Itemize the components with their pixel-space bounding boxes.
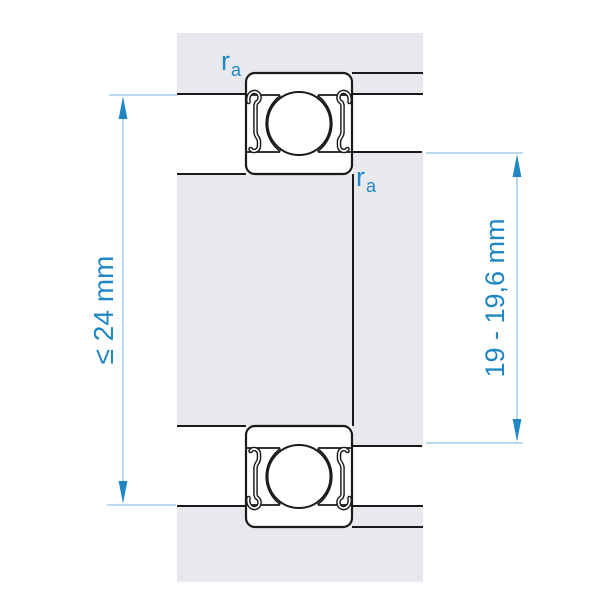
left-dimension-label: ≤ 24 mm bbox=[88, 256, 119, 365]
arrow-down-icon bbox=[119, 481, 128, 504]
left-dimension: ≤ 24 mm bbox=[88, 95, 177, 505]
shaft-shoulder-block bbox=[353, 152, 423, 446]
arrow-up-icon bbox=[119, 97, 128, 120]
right-dimension: 19 - 19,6 mm bbox=[426, 153, 523, 443]
bearing-bottom bbox=[246, 426, 352, 527]
bearing-top bbox=[246, 73, 352, 174]
ball bbox=[268, 92, 331, 155]
bearing-mounting-diagram: ≤ 24 mm 19 - 19,6 mm ra ra bbox=[0, 0, 600, 600]
shaft-block bbox=[177, 174, 353, 426]
right-dimension-label: 19 - 19,6 mm bbox=[480, 218, 510, 377]
arrow-down-icon bbox=[513, 419, 522, 442]
arrow-up-icon bbox=[513, 155, 522, 178]
